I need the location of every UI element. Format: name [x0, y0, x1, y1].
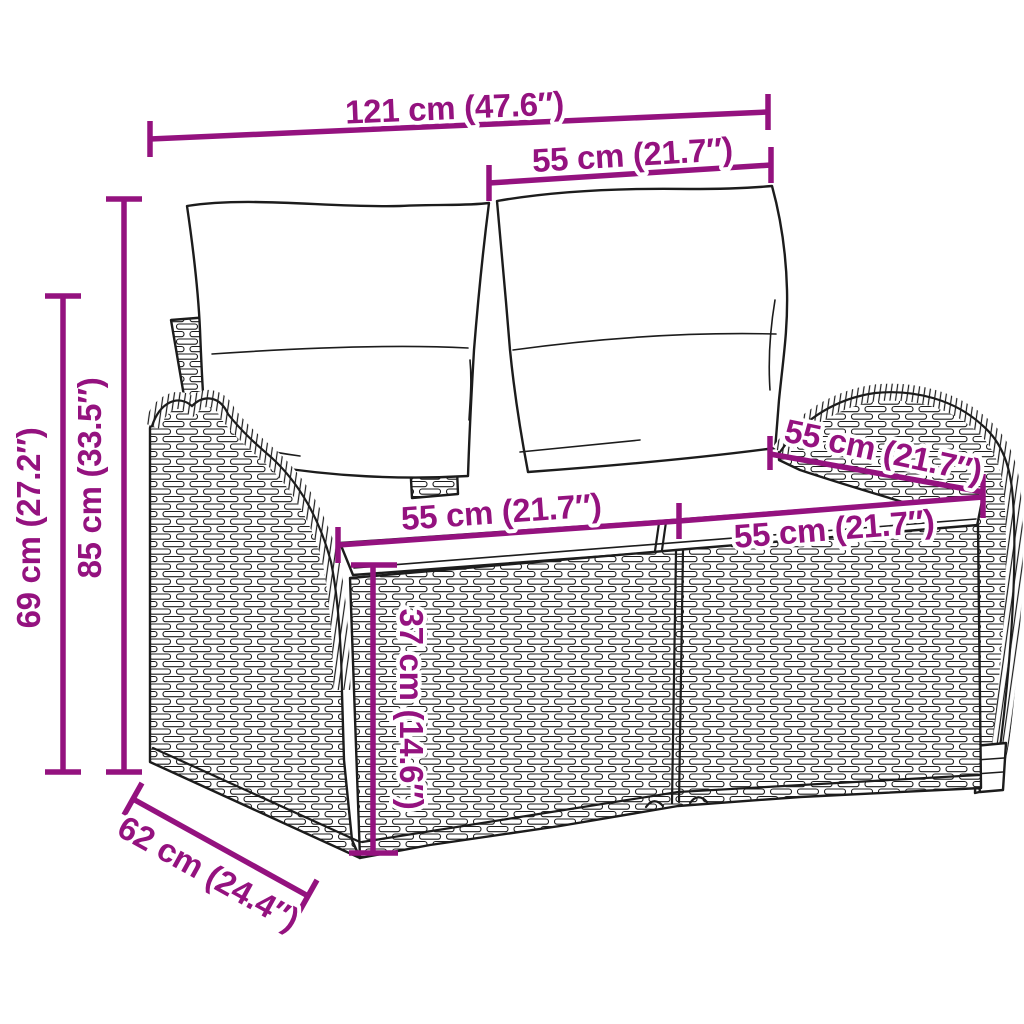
- bench-dimension-drawing: 121 cm (47.6″) 55 cm (21.7″) 85 cm (33.5…: [0, 0, 1024, 1024]
- back-cushion-right: [497, 186, 787, 472]
- dimension-overall-height: 85 cm (33.5″): [71, 199, 142, 772]
- dimension-seat-height-label: 37 cm (14.6″): [393, 609, 430, 810]
- dimension-diagram: 121 cm (47.6″) 55 cm (21.7″) 85 cm (33.5…: [0, 0, 1024, 1024]
- base-front-panel: [350, 525, 981, 858]
- dimension-overall-depth-label: 62 cm (24.4″): [112, 808, 306, 938]
- dimension-armrest-height-label: 69 cm (27.2″): [10, 428, 47, 629]
- dimension-overall-height-label: 85 cm (33.5″): [71, 378, 108, 579]
